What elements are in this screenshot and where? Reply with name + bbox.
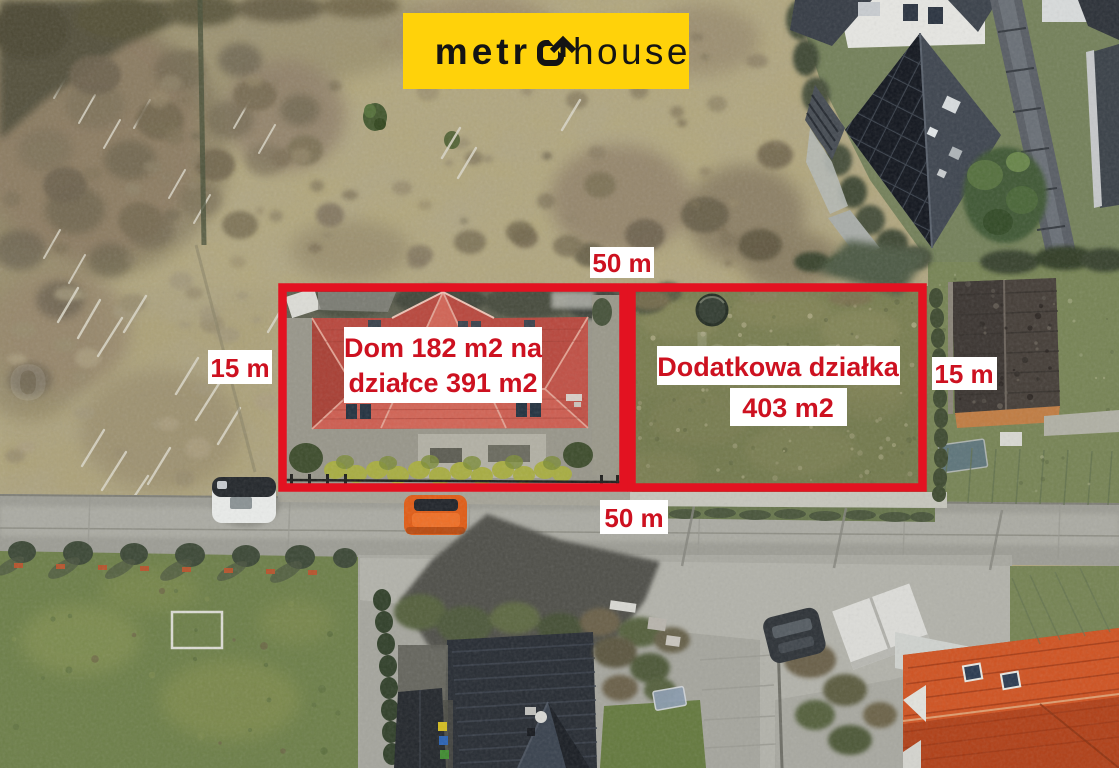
svg-text:15 m: 15 m	[210, 353, 269, 383]
svg-text:15 m: 15 m	[934, 359, 993, 389]
svg-text:o: o	[8, 340, 48, 414]
svg-text:403 m2: 403 m2	[742, 393, 834, 423]
svg-text:Dom 182 m2 na: Dom 182 m2 na	[344, 333, 543, 363]
svg-text:metr: metr	[435, 31, 531, 72]
svg-text:house: house	[573, 31, 691, 72]
svg-text:działce 391 m2: działce 391 m2	[348, 368, 537, 398]
svg-text:50 m: 50 m	[592, 248, 651, 278]
svg-text:Dodatkowa działka: Dodatkowa działka	[657, 352, 900, 382]
svg-text:50 m: 50 m	[604, 503, 663, 533]
